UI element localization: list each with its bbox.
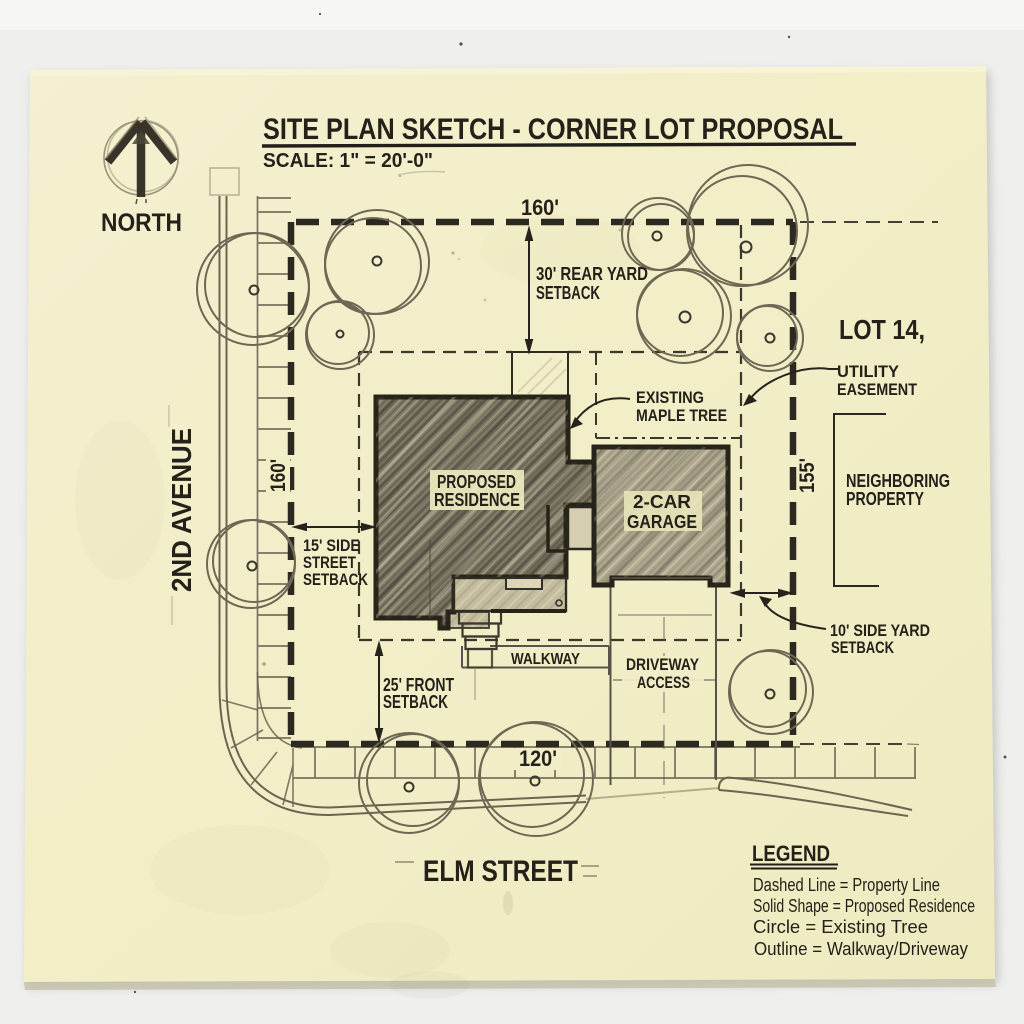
svg-text:SETBACK: SETBACK xyxy=(536,283,600,303)
svg-text:Dashed Line = Property Line: Dashed Line = Property Line xyxy=(753,875,940,895)
svg-text:SITE PLAN SKETCH - CORNER LOT: SITE PLAN SKETCH - CORNER LOT PROPOSAL xyxy=(263,113,843,146)
svg-text:RESIDENCE: RESIDENCE xyxy=(434,490,520,510)
svg-text:NEIGHBORING: NEIGHBORING xyxy=(846,471,950,491)
svg-text:Solid Shape = Proposed Residen: Solid Shape = Proposed Residence xyxy=(753,896,975,916)
svg-text:2-CAR: 2-CAR xyxy=(633,492,691,512)
svg-text:160': 160' xyxy=(267,459,290,492)
svg-text:GARAGE: GARAGE xyxy=(627,512,697,532)
svg-text:Outline = Walkway/Driveway: Outline = Walkway/Driveway xyxy=(754,939,968,959)
svg-text:SCALE: 1" = 20'-0": SCALE: 1" = 20'-0" xyxy=(263,150,433,172)
svg-text:LEGEND: LEGEND xyxy=(752,841,830,866)
svg-text:NORTH: NORTH xyxy=(101,209,182,237)
svg-text:ELM STREET: ELM STREET xyxy=(423,855,578,888)
svg-text:Circle = Existing Tree: Circle = Existing Tree xyxy=(753,917,928,937)
svg-text:SETBACK: SETBACK xyxy=(303,570,369,589)
svg-text:EASEMENT: EASEMENT xyxy=(837,380,918,399)
svg-text:30' REAR YARD: 30' REAR YARD xyxy=(536,264,648,284)
svg-text:DRIVEWAY: DRIVEWAY xyxy=(626,655,700,674)
svg-text:PROPERTY: PROPERTY xyxy=(846,489,924,509)
svg-text:EXISTING: EXISTING xyxy=(636,388,704,407)
svg-text:155': 155' xyxy=(796,458,819,493)
svg-text:ACCESS: ACCESS xyxy=(637,673,690,692)
svg-text:PROPOSED: PROPOSED xyxy=(437,472,516,492)
svg-text:SETBACK: SETBACK xyxy=(383,692,448,712)
svg-text:120': 120' xyxy=(519,746,557,771)
svg-text:LOT 14,: LOT 14, xyxy=(839,314,925,345)
svg-text:SETBACK: SETBACK xyxy=(831,638,895,657)
svg-text:2ND AVENUE: 2ND AVENUE xyxy=(166,428,197,592)
svg-text:WALKWAY: WALKWAY xyxy=(511,651,580,668)
svg-text:160': 160' xyxy=(521,195,559,220)
svg-text:UTILITY: UTILITY xyxy=(837,362,900,381)
svg-text:MAPLE TREE: MAPLE TREE xyxy=(636,406,727,425)
